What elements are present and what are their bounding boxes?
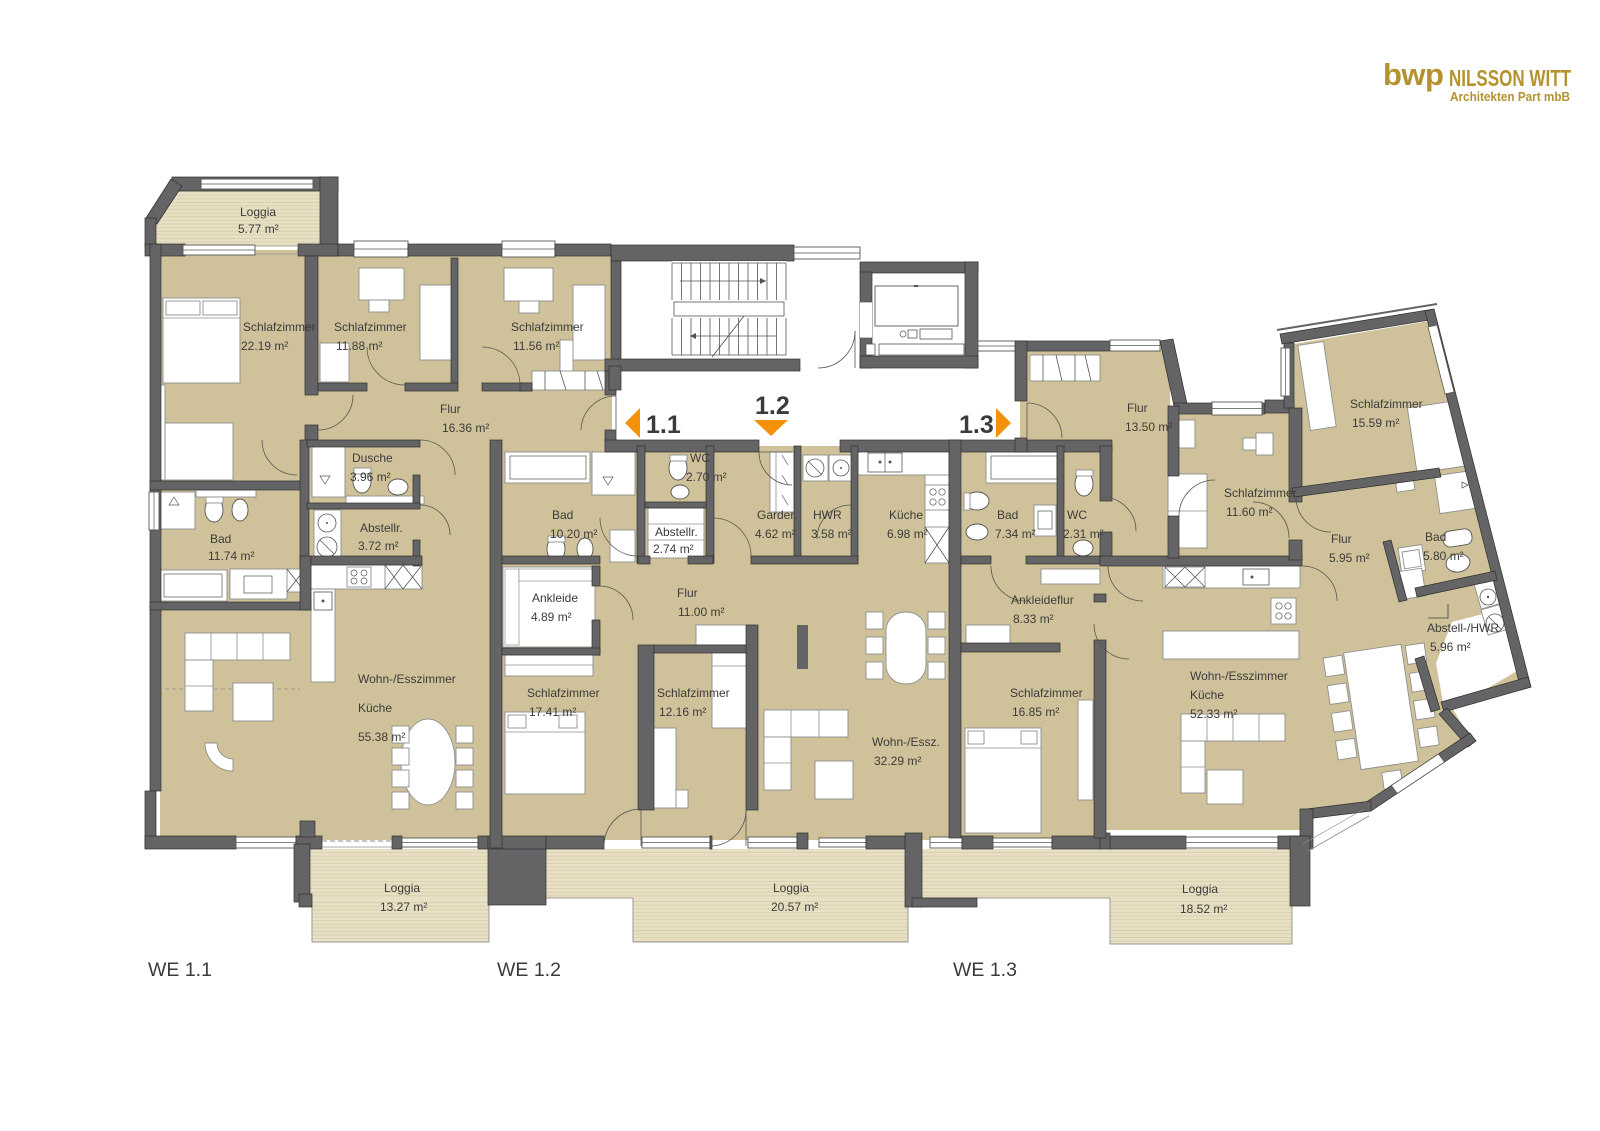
svg-text:1.2: 1.2 <box>755 392 790 420</box>
svg-text:10.20 m²: 10.20 m² <box>550 527 597 541</box>
svg-text:Bad: Bad <box>552 508 573 522</box>
svg-text:Flur: Flur <box>677 586 698 600</box>
svg-text:WE 1.1: WE 1.1 <box>148 959 212 981</box>
svg-text:NILSSON WITT: NILSSON WITT <box>1449 65 1571 91</box>
svg-text:Garder.: Garder. <box>757 508 797 522</box>
svg-text:18.52 m²: 18.52 m² <box>1180 902 1227 916</box>
svg-text:52.33 m²: 52.33 m² <box>1190 707 1237 721</box>
svg-text:WC: WC <box>690 451 710 465</box>
svg-text:4.62 m²: 4.62 m² <box>755 527 796 541</box>
svg-text:Schlafzimmer: Schlafzimmer <box>334 320 407 334</box>
svg-text:Loggia: Loggia <box>1182 882 1218 896</box>
svg-text:Wohn-/Essz.: Wohn-/Essz. <box>872 735 940 749</box>
svg-text:3.96 m²: 3.96 m² <box>350 470 391 484</box>
svg-text:22.19 m²: 22.19 m² <box>241 339 288 353</box>
svg-text:3.58 m²: 3.58 m² <box>811 527 852 541</box>
svg-text:Schlafzimmer: Schlafzimmer <box>657 686 730 700</box>
svg-text:Architekten Part mbB: Architekten Part mbB <box>1450 90 1570 104</box>
svg-text:Flur: Flur <box>440 402 461 416</box>
svg-text:11.88 m²: 11.88 m² <box>336 339 382 353</box>
svg-text:WE 1.2: WE 1.2 <box>497 959 561 981</box>
svg-text:WE 1.3: WE 1.3 <box>953 959 1017 981</box>
svg-text:17.41 m²: 17.41 m² <box>529 705 576 719</box>
svg-text:WC: WC <box>1067 508 1087 522</box>
svg-text:Bad: Bad <box>210 532 231 546</box>
svg-text:6.98 m²: 6.98 m² <box>887 527 928 541</box>
svg-text:Loggia: Loggia <box>240 205 276 219</box>
svg-text:Ankleide: Ankleide <box>532 591 578 605</box>
svg-text:Abstellr.: Abstellr. <box>655 525 698 539</box>
svg-text:Schlafzimmer: Schlafzimmer <box>1224 486 1297 500</box>
svg-text:1.1: 1.1 <box>646 411 681 439</box>
svg-text:13.27 m²: 13.27 m² <box>380 900 427 914</box>
svg-text:15.59 m²: 15.59 m² <box>1352 416 1399 430</box>
svg-text:HWR: HWR <box>813 508 842 522</box>
svg-text:5.95 m²: 5.95 m² <box>1329 551 1370 565</box>
svg-text:Abstell-/HWR: Abstell-/HWR <box>1427 621 1499 635</box>
svg-text:Schlafzimmer: Schlafzimmer <box>1010 686 1083 700</box>
svg-text:Abstellr.: Abstellr. <box>360 521 403 535</box>
svg-text:3.72 m²: 3.72 m² <box>358 539 399 553</box>
svg-text:Küche: Küche <box>1190 688 1224 702</box>
svg-text:Wohn-/Esszimmer: Wohn-/Esszimmer <box>1190 669 1288 683</box>
svg-text:Schlafzimmer: Schlafzimmer <box>243 320 316 334</box>
svg-text:bwp: bwp <box>1383 57 1444 92</box>
svg-text:8.33 m²: 8.33 m² <box>1013 612 1054 626</box>
svg-text:2.31 m²: 2.31 m² <box>1063 527 1104 541</box>
svg-text:20.57 m²: 20.57 m² <box>771 900 818 914</box>
svg-text:Küche: Küche <box>889 508 923 522</box>
svg-text:13.50 m²: 13.50 m² <box>1125 420 1172 434</box>
svg-text:1.3: 1.3 <box>959 411 994 439</box>
svg-text:Schlafzimmer: Schlafzimmer <box>527 686 600 700</box>
svg-text:7.34 m²: 7.34 m² <box>995 527 1036 541</box>
svg-text:4.89 m²: 4.89 m² <box>531 610 572 624</box>
svg-text:Bad: Bad <box>997 508 1018 522</box>
svg-text:Dusche: Dusche <box>352 451 393 465</box>
svg-text:11.60 m²: 11.60 m² <box>1226 505 1272 519</box>
svg-text:Loggia: Loggia <box>384 881 420 895</box>
svg-text:Ankleideflur: Ankleideflur <box>1011 593 1074 607</box>
svg-text:Küche: Küche <box>358 701 392 715</box>
svg-text:Schlafzimmer: Schlafzimmer <box>1350 397 1423 411</box>
svg-text:16.36 m²: 16.36 m² <box>442 421 489 435</box>
svg-text:11.74 m²: 11.74 m² <box>208 549 254 563</box>
svg-text:5.77 m²: 5.77 m² <box>238 222 279 236</box>
svg-text:5.80 m²: 5.80 m² <box>1423 549 1464 563</box>
svg-text:Schlafzimmer: Schlafzimmer <box>511 320 584 334</box>
svg-text:5.96 m²: 5.96 m² <box>1430 640 1471 654</box>
svg-text:Loggia: Loggia <box>773 881 809 895</box>
svg-text:11.56 m²: 11.56 m² <box>513 339 559 353</box>
svg-text:Flur: Flur <box>1127 401 1148 415</box>
svg-text:Wohn-/Esszimmer: Wohn-/Esszimmer <box>358 672 456 686</box>
svg-text:Flur: Flur <box>1331 532 1352 546</box>
svg-text:Bad: Bad <box>1425 530 1446 544</box>
svg-text:32.29 m²: 32.29 m² <box>874 754 921 768</box>
svg-text:2.74 m²: 2.74 m² <box>653 542 694 556</box>
svg-text:16.85 m²: 16.85 m² <box>1012 705 1059 719</box>
svg-text:2.70 m²: 2.70 m² <box>686 470 727 484</box>
svg-text:55.38 m²: 55.38 m² <box>358 730 405 744</box>
svg-text:11.00 m²: 11.00 m² <box>678 605 724 619</box>
svg-text:12.16 m²: 12.16 m² <box>659 705 706 719</box>
